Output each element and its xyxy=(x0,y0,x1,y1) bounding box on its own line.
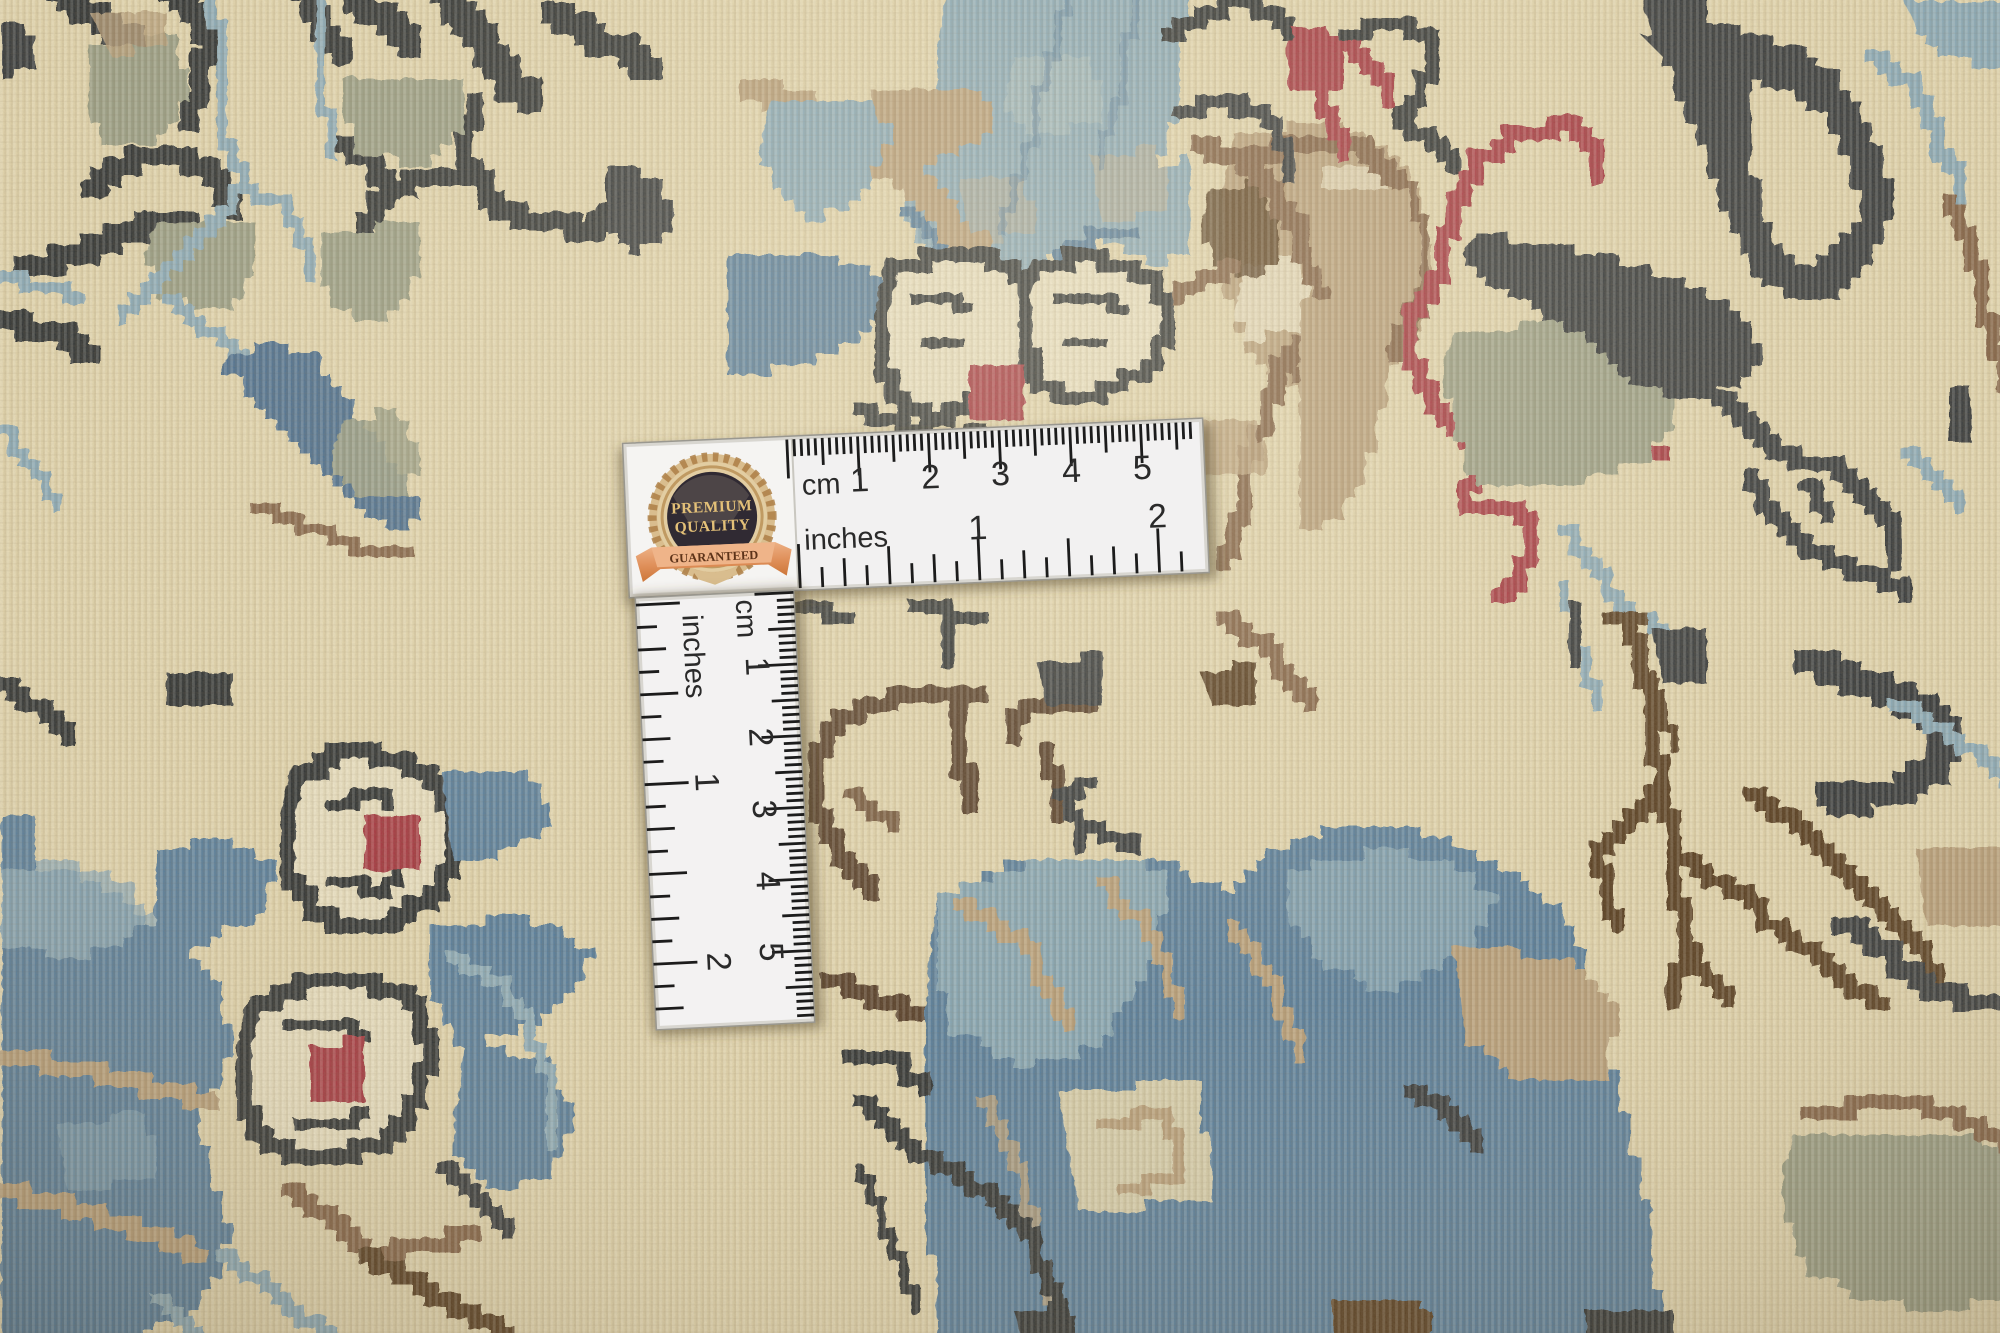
svg-text:cm: cm xyxy=(801,468,841,502)
svg-text:inches: inches xyxy=(675,614,711,699)
svg-text:5: 5 xyxy=(752,942,791,963)
svg-text:1: 1 xyxy=(968,509,989,548)
svg-text:cm: cm xyxy=(729,599,763,639)
svg-text:4: 4 xyxy=(748,871,787,892)
svg-text:2: 2 xyxy=(1147,497,1168,536)
svg-text:PREMIUM: PREMIUM xyxy=(671,497,753,518)
svg-text:inches: inches xyxy=(804,521,889,557)
svg-text:1: 1 xyxy=(687,771,726,792)
svg-text:3: 3 xyxy=(745,799,784,820)
svg-text:2: 2 xyxy=(741,727,780,748)
svg-text:1: 1 xyxy=(849,461,870,500)
svg-text:3: 3 xyxy=(990,455,1011,494)
svg-text:QUALITY: QUALITY xyxy=(674,516,751,536)
svg-text:5: 5 xyxy=(1132,449,1153,488)
svg-text:2: 2 xyxy=(920,458,941,497)
svg-text:4: 4 xyxy=(1061,452,1082,491)
svg-text:1: 1 xyxy=(738,656,777,677)
svg-text:2: 2 xyxy=(699,951,738,972)
